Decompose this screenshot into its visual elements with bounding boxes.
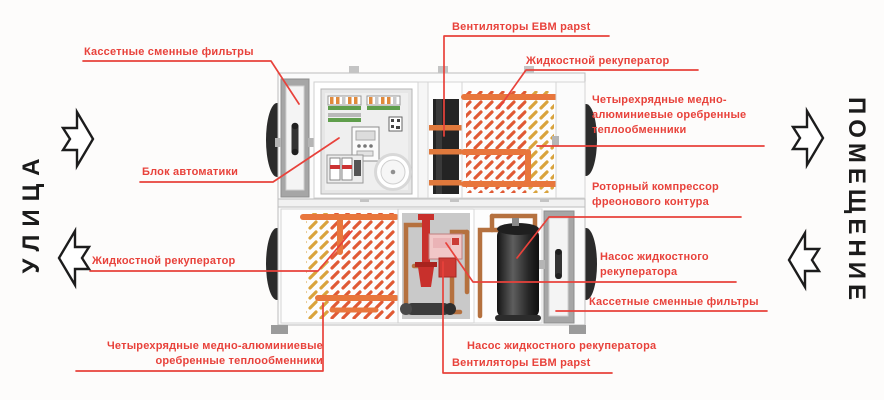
street-zone-label: УЛИЦА bbox=[18, 102, 46, 322]
label-rotary-compressor: Роторный компрессор фреонового контура bbox=[592, 180, 762, 210]
label-fans-bottom: Вентиляторы EBM papst bbox=[452, 356, 590, 371]
filter-door-bottom-right bbox=[539, 211, 574, 323]
heat-exchanger-top bbox=[462, 82, 585, 198]
room-return-arrow-icon bbox=[789, 233, 819, 287]
label-cassette-filters-right: Кассетные сменные фильтры bbox=[589, 295, 759, 310]
label-automation-unit: Блок автоматики bbox=[142, 165, 238, 180]
label-heat-exchangers-right: Четырехрядные медно- алюминиевые оребрен… bbox=[592, 93, 777, 138]
label-recuperator-pump-right: Насос жидкостного рекуператора bbox=[600, 250, 750, 280]
label-cassette-filters-top: Кассетные сменные фильтры bbox=[84, 45, 254, 60]
compressor-assembly bbox=[474, 209, 542, 323]
room-zone-label: ПОМЕЩЕНИЕ bbox=[842, 81, 870, 321]
label-recuperator-pump-bottom: Насос жидкостного рекуператора bbox=[467, 339, 656, 354]
fan-section-top bbox=[418, 82, 466, 198]
label-liquid-recuperator-top: Жидкостной рекуператор bbox=[526, 54, 669, 69]
automation-panel bbox=[314, 82, 418, 198]
label-liquid-recuperator-left: Жидкостной рекуператор bbox=[92, 254, 235, 269]
ahu-diagram: УЛИЦА ПОМЕЩЕНИЕ Кассетные сменные фильтр… bbox=[0, 0, 884, 400]
street-exhaust-arrow-icon bbox=[59, 231, 89, 285]
label-heat-exchangers-bottom: Четырехрядные медно-алюминиевые оребренн… bbox=[60, 339, 323, 369]
label-fans-top: Вентиляторы EBM papst bbox=[452, 20, 590, 35]
street-supply-arrow-icon bbox=[63, 112, 93, 166]
room-supply-arrow-icon bbox=[793, 111, 823, 165]
heat-exchanger-bottom bbox=[281, 209, 398, 323]
